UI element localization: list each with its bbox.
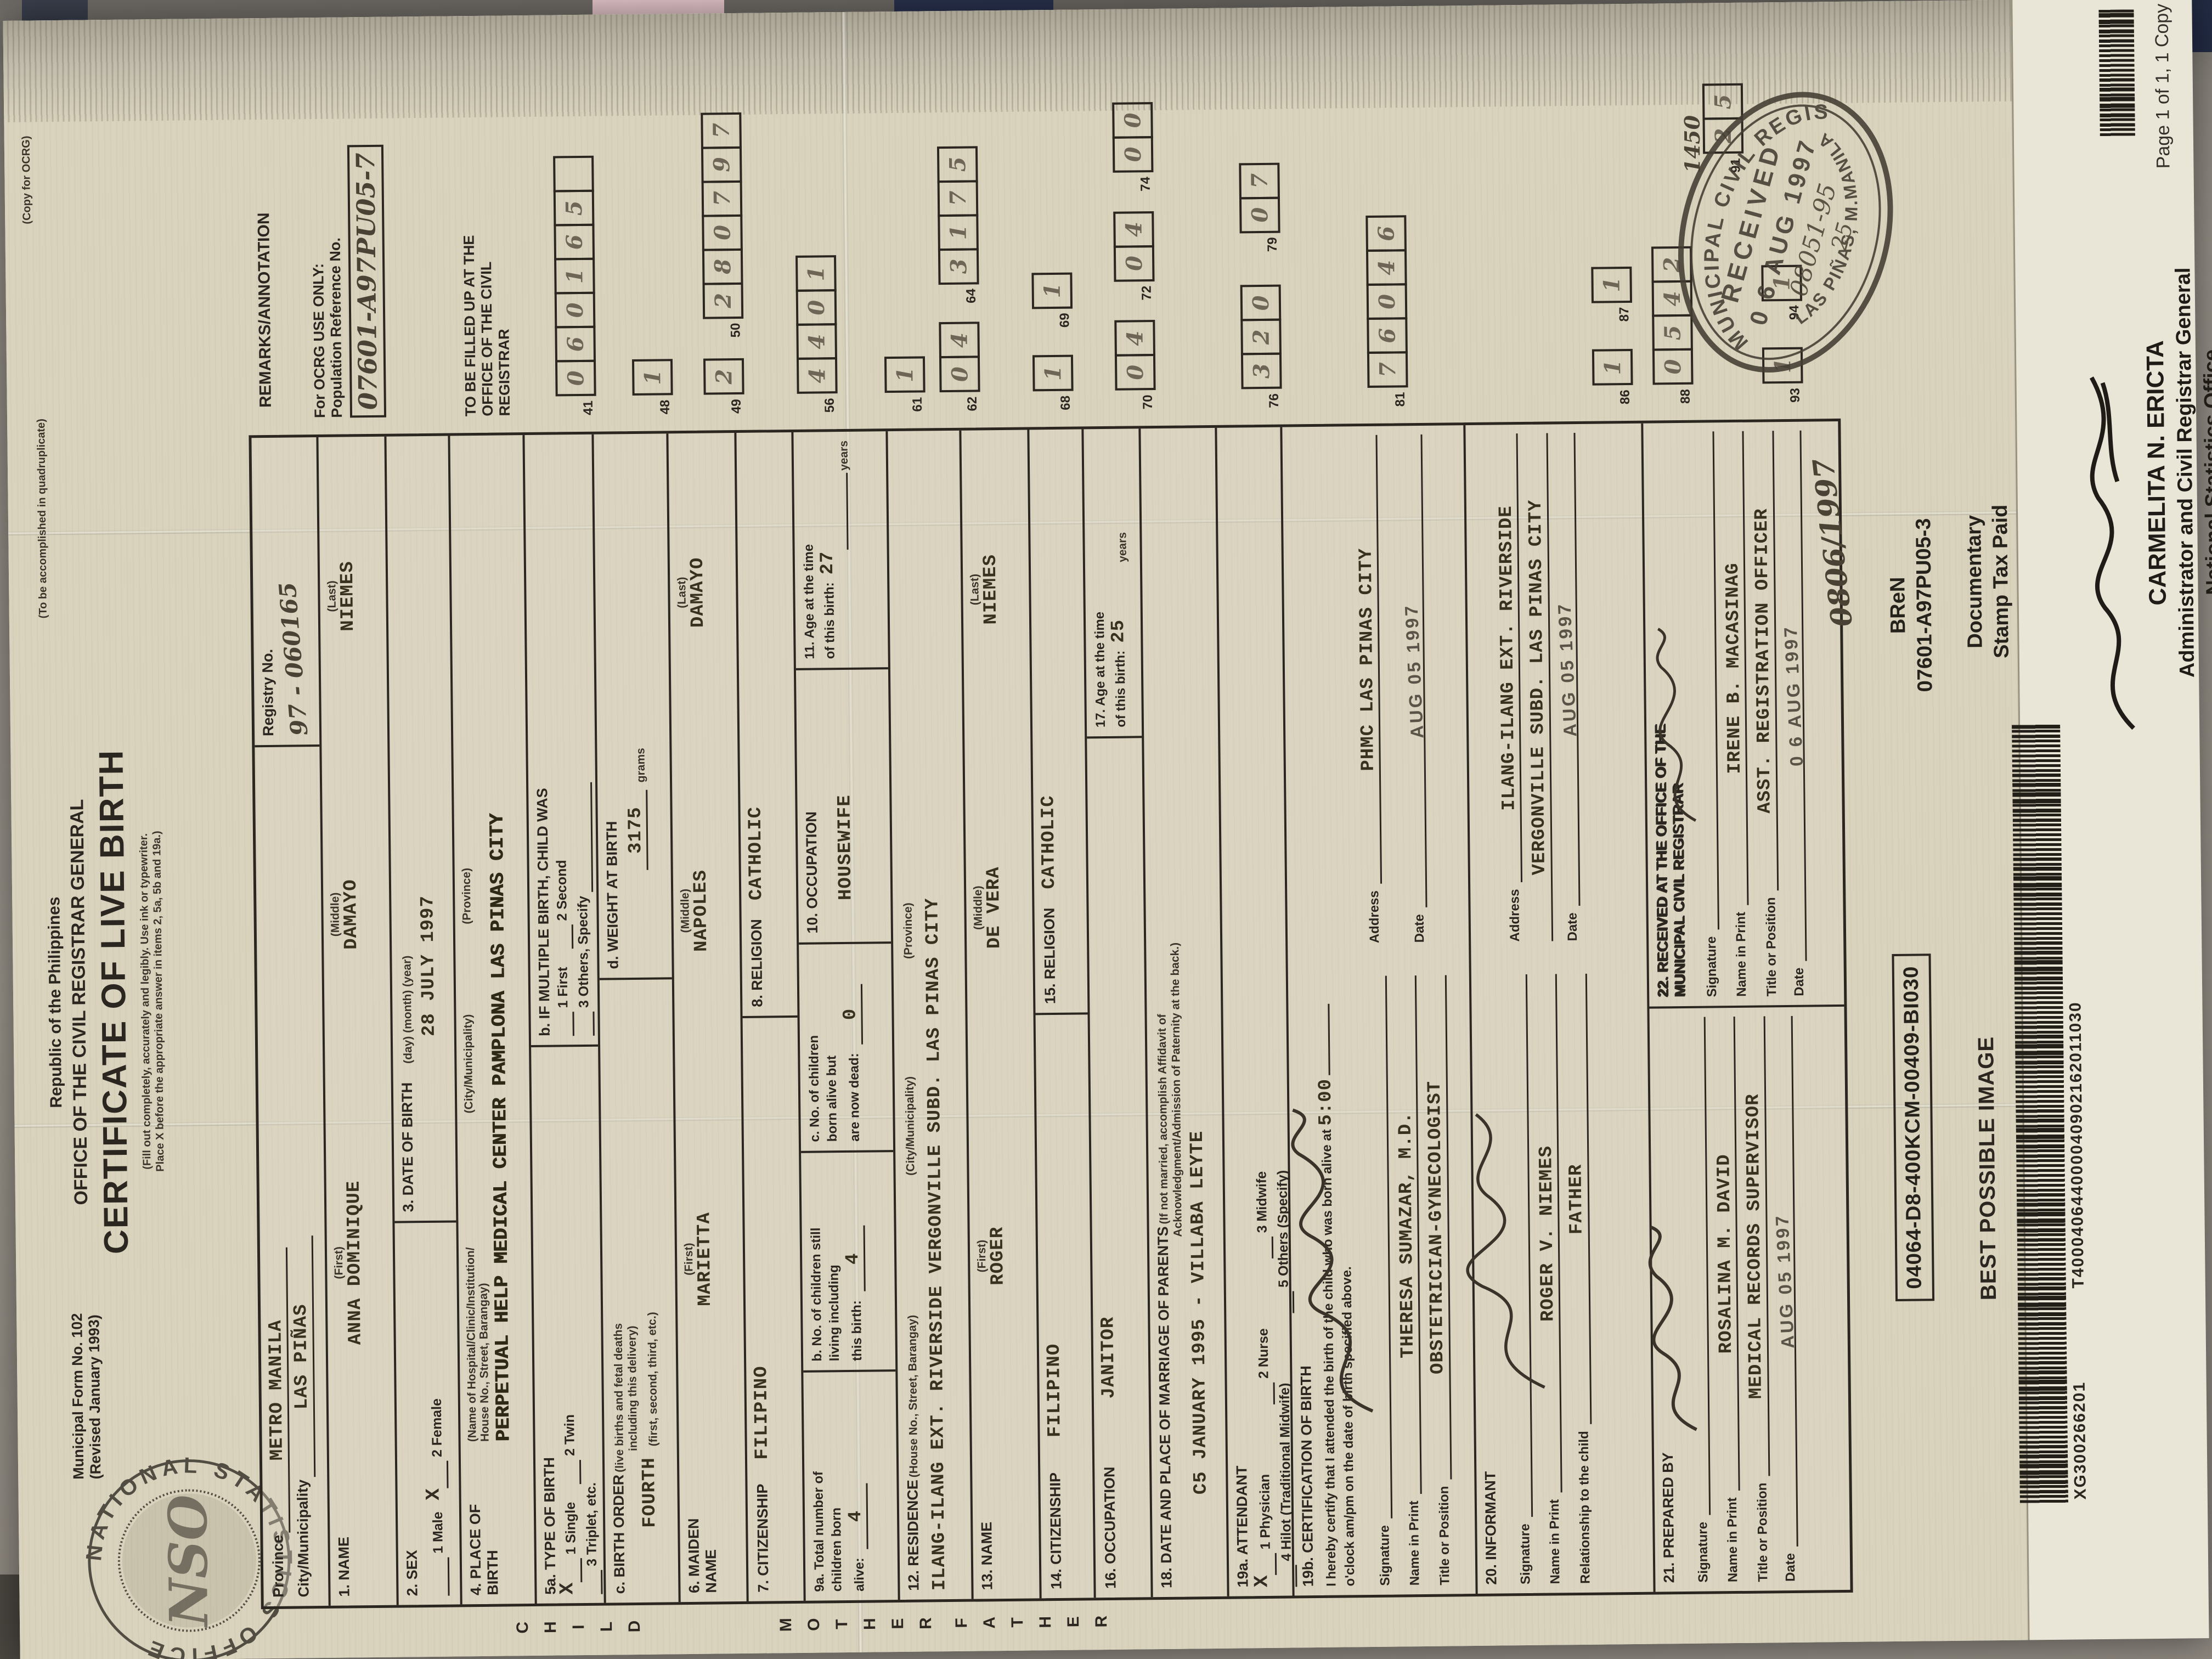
attendant-option-midwife: 3 Midwife bbox=[1254, 1171, 1270, 1233]
multiple-birth-label: b. IF MULTIPLE BIRTH, CHILD WAS bbox=[534, 788, 553, 1036]
mother-age: 27 bbox=[818, 551, 839, 574]
father-occupation-label: 16. OCCUPATION bbox=[1101, 1466, 1119, 1589]
child-name-label: 1. NAME bbox=[335, 1537, 352, 1597]
best-possible-image-label: BEST POSSIBLE IMAGE bbox=[1973, 1036, 2001, 1301]
dob-sublabels: (day) (month) (year) bbox=[400, 956, 414, 1064]
mult-option-others: 3 Others, Specify bbox=[575, 896, 591, 1008]
ocrg-box-group-48: 481 bbox=[632, 359, 673, 415]
type-option-single: 1 Single bbox=[563, 1502, 579, 1555]
ocrg-box-group-70-72-74: 7004 7204 7400 bbox=[1112, 102, 1156, 410]
residence-sub2: (City/Municipality) bbox=[904, 1076, 917, 1176]
quadruplicate-note: (To be accomplished in quadruplicate) bbox=[35, 419, 50, 618]
birth-order-sub3: (first, second, third, etc.) bbox=[646, 1312, 661, 1446]
page-copy-label: Page 1 of 1, 1 Copy bbox=[2151, 4, 2175, 218]
pob-sub4: (Province) bbox=[460, 868, 473, 924]
children-now-dead: 0 bbox=[840, 1008, 861, 1020]
residence-sub1: (House No., Street, Barangay) bbox=[906, 1315, 920, 1478]
side-label-father: FATHER bbox=[952, 1612, 1120, 1633]
birth-time: 5:00 bbox=[1316, 1079, 1337, 1126]
attendant-option-hilot: 4 Hilot (Traditional Midwife) bbox=[1277, 1383, 1294, 1561]
mother-first-name: MARIETTA bbox=[693, 1079, 718, 1440]
father-first-name: ROGER bbox=[986, 1075, 1011, 1436]
residence-label: 12. RESIDENCE bbox=[904, 1480, 922, 1591]
father-religion: CATHOLIC bbox=[1038, 795, 1060, 889]
attendant-option-others: 5 Others (Specify) bbox=[1274, 1170, 1291, 1288]
attendant-option-physician: 1 Physician bbox=[1257, 1474, 1273, 1550]
province-value: METRO MANILA bbox=[266, 1319, 288, 1460]
informant-name: ROGER V. NIEMES bbox=[1536, 1145, 1559, 1322]
ocrg-box-group-49-50: 492 50280797 bbox=[701, 112, 744, 414]
carmelita-signature bbox=[2075, 360, 2150, 745]
weight-value: 3175 bbox=[625, 790, 648, 870]
batch-number-box: 04064-D8-400KCM-00409-BI030 bbox=[1892, 953, 1934, 1301]
received-date: 0 6 AUG 1997 bbox=[1781, 625, 1806, 767]
physician-address: PHMC LAS PINAS CITY bbox=[1356, 548, 1379, 771]
certification-date: AUG 05 1997 bbox=[1402, 603, 1426, 739]
certification-text2: o'clock bbox=[1342, 1542, 1358, 1587]
ocrg-box-group-76-79: 76320 7907 bbox=[1239, 162, 1282, 408]
birth-certificate-document: NATIONAL STATISTICS OFFICE NSO Municipal… bbox=[3, 0, 2209, 1659]
child-last-name: NIEMES bbox=[337, 445, 360, 746]
weight-label: d. WEIGHT AT BIRTH bbox=[603, 821, 622, 969]
father-age: 25 bbox=[1109, 619, 1130, 643]
population-ref-label: Population Reference No. bbox=[326, 145, 346, 418]
certification-label: 19b. CERTIFICATION OF BIRTH bbox=[1288, 436, 1317, 1587]
prepared-by-label: 21. PREPARED BY bbox=[1655, 1017, 1678, 1583]
type-of-birth-label: 5a. TYPE OF BIRTH bbox=[541, 1457, 559, 1595]
bren-block: BReN 07601-A97PU05-3 bbox=[1884, 518, 1938, 692]
informant-address2: VERGONVILLE SUBD. LAS PINAS CITY bbox=[1526, 499, 1550, 875]
pob-sub3: (City/Municipality) bbox=[461, 1014, 475, 1114]
attendant-option-nurse: 2 Nurse bbox=[1256, 1328, 1272, 1379]
ocrg-box-group-86-87: 861 871 bbox=[1591, 267, 1633, 405]
city-label: City/Municipality bbox=[295, 1480, 312, 1598]
informant-relationship: FATHER bbox=[1566, 1164, 1588, 1234]
seal-center-text: NSO bbox=[157, 1494, 221, 1629]
sex-option-male: 1 Male bbox=[430, 1511, 446, 1554]
ocrg-box-group-61: 611 bbox=[884, 357, 926, 412]
mother-last-name: DAMAYO bbox=[687, 442, 710, 743]
documentary-stamp-block: Documentary Stamp Tax Paid bbox=[1961, 504, 2015, 658]
physician-title: OBSTETRICIAN-GYNECOLOGIST bbox=[1425, 1081, 1449, 1374]
child-middle-name: DAMAYO bbox=[340, 764, 364, 1064]
maiden-name-label: 6. MAIDEN bbox=[685, 1457, 703, 1593]
birth-order-label: c. BIRTH ORDER bbox=[610, 1475, 628, 1594]
father-religion-label: 15. RELIGION bbox=[1041, 907, 1058, 1004]
sex-label: 2. SEX bbox=[404, 1550, 421, 1596]
photo-scene: NATIONAL STATISTICS OFFICE NSO Municipal… bbox=[0, 0, 2212, 1659]
mother-citizenship: FILIPINO bbox=[751, 1365, 773, 1460]
secpa-barcode bbox=[2098, 9, 2135, 136]
dob-value: 28 JULY 1997 bbox=[414, 445, 441, 1036]
office-line: OFFICE OF THE CIVIL REGISTRAR GENERAL bbox=[65, 651, 93, 1353]
father-name-label: 13. NAME bbox=[978, 1522, 995, 1590]
children-still-living: 4 bbox=[843, 1252, 864, 1265]
father-occupation: JANITOR bbox=[1098, 1316, 1120, 1398]
remarks-title: REMARKS/ANNOTATION bbox=[255, 212, 275, 408]
birth-order-sub1: (live births and fetal deaths bbox=[612, 1323, 626, 1472]
mother-religion-label: 8. RELIGION bbox=[748, 919, 766, 1007]
children-born-alive: 4 bbox=[845, 1510, 866, 1522]
marriage-value: C5 JANUARY 1995 - VILLABA LEYTE bbox=[1181, 437, 1212, 1494]
mult-option-second: 2 Second bbox=[554, 860, 570, 921]
side-label-child: CHILD bbox=[513, 1617, 653, 1638]
registrar-name: IRENE B. MACASINAG bbox=[1723, 562, 1746, 774]
xg-number: XG300266201 bbox=[2070, 1381, 2090, 1500]
type-option-twin: 2 Twin bbox=[562, 1414, 578, 1456]
population-ref-value: 07601-A97PU05-7 bbox=[351, 153, 383, 410]
secpa-security-paper: NATIONAL STATISTICS OFFICE NSO Municipal… bbox=[3, 0, 2209, 1659]
prepared-by-date: AUG 05 1997 bbox=[1773, 1214, 1797, 1349]
father-citizenship-label: 14. CITIZENSHIP bbox=[1047, 1472, 1064, 1589]
mother-occupation-label: 10. OCCUPATION bbox=[802, 679, 821, 933]
ocrg-box-group-41: 41060165 bbox=[553, 156, 596, 415]
type-option-triplet: 3 Triplet, etc. bbox=[583, 1482, 600, 1566]
sex-option-female: 2 Female bbox=[429, 1398, 445, 1457]
registrar-title: ASST. REGISTRATION OFFICER bbox=[1752, 508, 1776, 814]
grams-label: grams bbox=[635, 748, 648, 782]
type-of-birth-mark: X bbox=[556, 1583, 578, 1595]
father-citizenship: FILIPINO bbox=[1044, 1344, 1066, 1438]
certificate-title: CERTIFICATE OF LIVE BIRTH bbox=[91, 651, 137, 1353]
certification-text1: I hereby certify that I attended the bir… bbox=[1319, 1129, 1339, 1587]
province-label: Province bbox=[269, 1535, 286, 1598]
birth-order-value: FOURTH bbox=[640, 1457, 661, 1528]
mother-citizenship-label: 7. CITIZENSHIP bbox=[754, 1483, 771, 1592]
ocrg-box-group-81: 8176046 bbox=[1365, 216, 1408, 407]
attendant-mark: X bbox=[1250, 1575, 1273, 1587]
dob-label: 3. DATE OF BIRTH bbox=[399, 1082, 416, 1212]
informant-date: AUG 05 1997 bbox=[1555, 602, 1579, 737]
prepared-by-name: ROSALINA M. DAVID bbox=[1714, 1154, 1737, 1353]
physician-name: THERESA SUMAZAR, M.D. bbox=[1395, 1111, 1419, 1358]
child-first-name: ANNA DOMINIQUE bbox=[343, 1082, 368, 1443]
father-middle-name: DE VERA bbox=[983, 757, 1007, 1058]
ocrg-box-group-68-69: 681 691 bbox=[1031, 272, 1074, 410]
certification-text3: am/pm on the date of birth specified abo… bbox=[1340, 1266, 1357, 1538]
main-barcode bbox=[2012, 724, 2068, 1503]
sex-mark: X bbox=[422, 1488, 445, 1500]
prepared-by-title: MEDICAL RECORDS SUPERVISOR bbox=[1743, 1093, 1768, 1399]
marriage-note1: (If not married, accomplish Affidavit of bbox=[1156, 1014, 1171, 1224]
ocrg-box-group-56: 564401 bbox=[795, 255, 838, 413]
mult-option-first: 1 First bbox=[555, 967, 571, 1008]
main-form-table: Province METRO MANILA City/Municipality … bbox=[249, 419, 1853, 1609]
residence-value: ILANG-ILANG EXT. RIVERSIDE VERGONVILLE S… bbox=[918, 439, 951, 1590]
pob-sub1: (Name of Hospital/Clinic/Institution/ bbox=[464, 1247, 479, 1442]
ocrg-use-only: For OCRG USE ONLY: bbox=[309, 145, 329, 418]
marriage-label: 18. DATE AND PLACE OF MARRIAGE OF PARENT… bbox=[1155, 1226, 1175, 1588]
father-last-name: NIEMES bbox=[980, 439, 1003, 740]
residence-sub3: (Province) bbox=[901, 902, 915, 959]
photocopy-area: NATIONAL STATISTICS OFFICE NSO Municipal… bbox=[3, 0, 2029, 1659]
pob-label: 4. PLACE OF bbox=[466, 1459, 485, 1595]
informant-address1: ILANG-ILANG EXT. RIVERSIDE bbox=[1496, 505, 1520, 811]
city-value: LAS PIÑAS bbox=[291, 1304, 313, 1409]
form-header: Republic of the Philippines OFFICE OF TH… bbox=[42, 650, 168, 1353]
bren-number: 07601-A97PU05-3 bbox=[1911, 518, 1939, 692]
ocrg-box-group-62-64: 6204 643175 bbox=[937, 146, 980, 411]
barcode-number: T400040644000040902162011030 bbox=[2066, 1001, 2087, 1288]
mother-religion: CATHOLIC bbox=[746, 806, 768, 901]
republic-line: Republic of the Philippines bbox=[42, 651, 69, 1353]
mother-occupation: HOUSEWIFE bbox=[834, 679, 857, 900]
side-label-mother: MOTHER bbox=[777, 1614, 945, 1634]
carmelita-block: CARMELITA N. ERICTA Administrator and Ci… bbox=[2137, 129, 2212, 816]
mother-middle-name: NAPOLES bbox=[690, 760, 714, 1061]
